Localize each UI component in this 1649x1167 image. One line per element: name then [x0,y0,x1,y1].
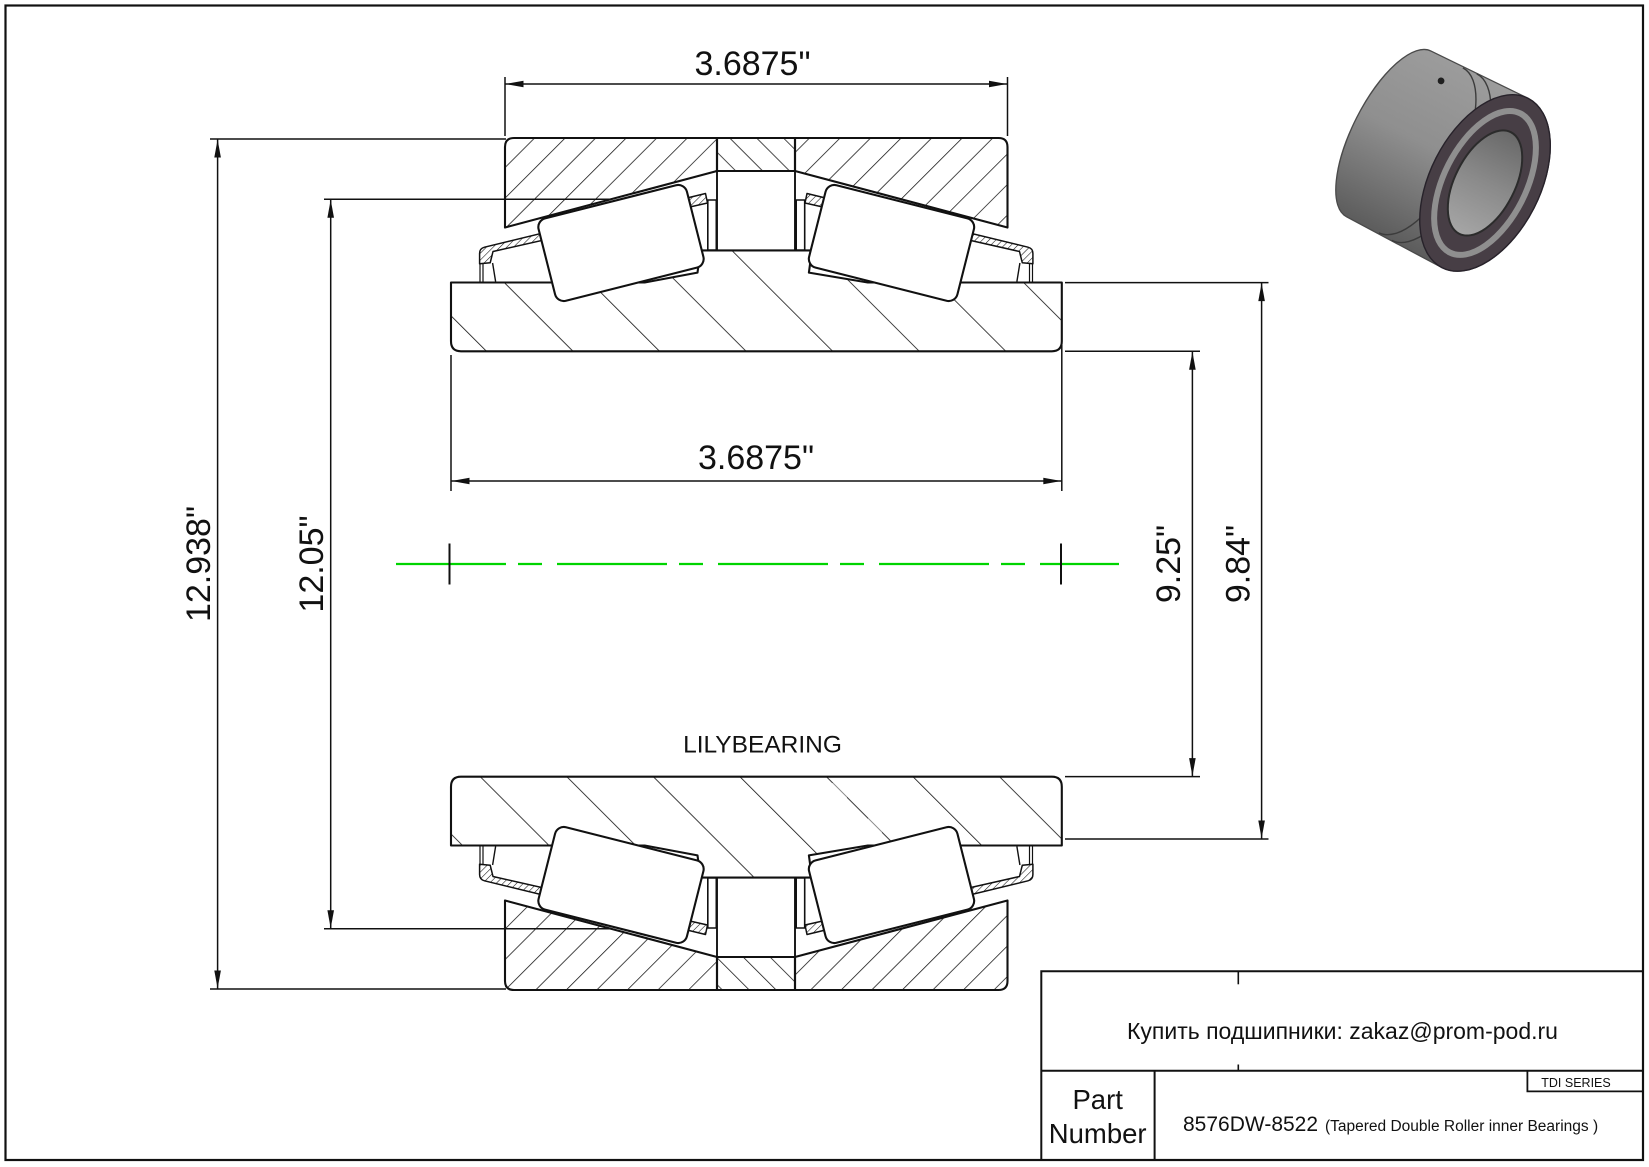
svg-text:9.84": 9.84" [1220,525,1258,603]
svg-text:Part: Part [1072,1084,1123,1115]
svg-text:(Tapered Double Roller inner B: (Tapered Double Roller inner Bearings ) [1325,1118,1598,1135]
svg-text:9.25": 9.25" [1150,525,1188,603]
svg-text:3.6875": 3.6875" [698,439,814,477]
svg-text:8576DW-8522: 8576DW-8522 [1183,1113,1318,1136]
svg-text:TDI SERIES: TDI SERIES [1541,1076,1610,1090]
svg-text:12.05": 12.05" [293,515,331,612]
svg-text:3.6875": 3.6875" [694,45,810,83]
svg-text:12.938": 12.938" [180,506,218,622]
svg-text:Number: Number [1049,1118,1147,1149]
svg-text:LILYBEARING: LILYBEARING [683,732,842,759]
svg-text:Купить подшипники: zakaz@prom-: Купить подшипники: zakaz@prom-pod.ru [1127,1018,1558,1044]
